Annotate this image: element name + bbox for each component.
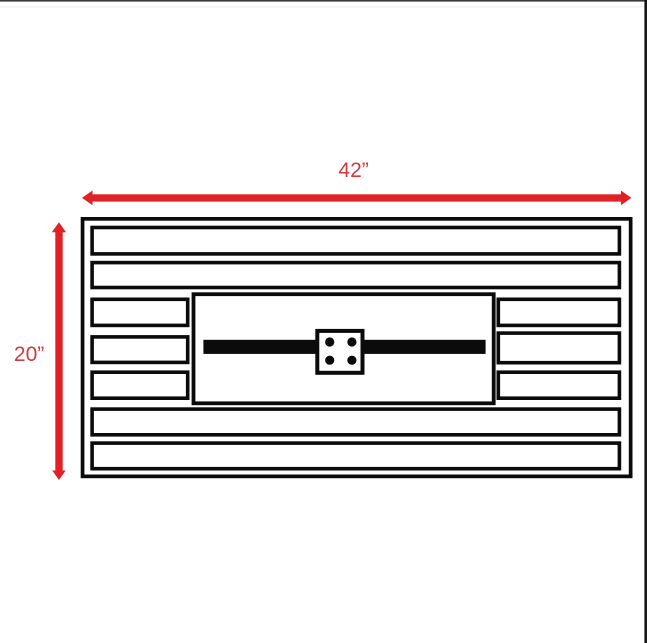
- svg-text:42”: 42”: [338, 159, 368, 182]
- svg-text:20”: 20”: [14, 343, 44, 366]
